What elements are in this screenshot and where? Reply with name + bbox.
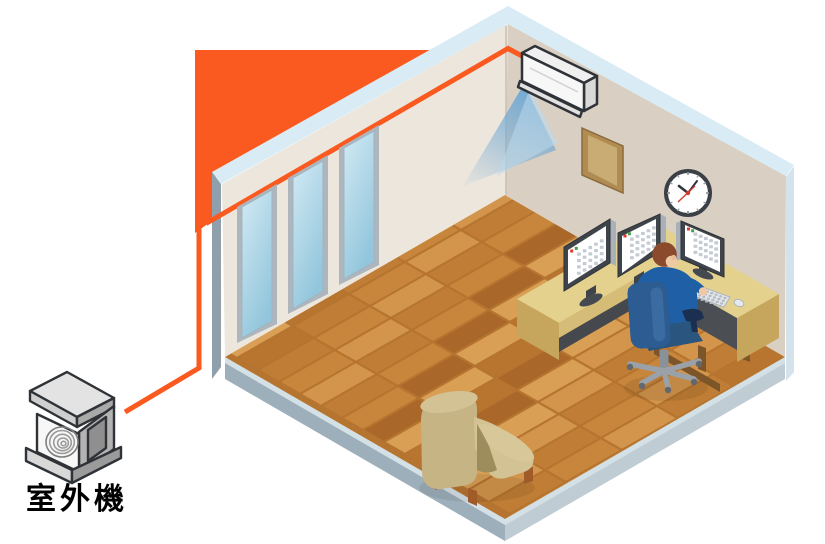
floor-plank	[638, 0, 711, 21]
floor-plank	[561, 0, 634, 41]
screen-grid-cell	[636, 247, 640, 250]
screen-red-dot	[570, 250, 573, 253]
floor-plank	[799, 199, 825, 241]
screen-grid-cell	[641, 232, 645, 235]
keyboard-key	[701, 299, 704, 301]
keyboard-key	[702, 296, 705, 298]
screen-grid-cell	[652, 239, 656, 242]
keyboard-key	[707, 298, 710, 300]
window-glass	[293, 161, 323, 309]
floor-plank	[813, 335, 825, 377]
screen-grid-cell	[588, 252, 592, 255]
screen-grid-cell	[714, 241, 718, 244]
chair-caster	[696, 361, 702, 367]
floor-plank	[708, 83, 781, 125]
person-ear	[671, 255, 676, 260]
screen-grid-cell	[636, 241, 640, 244]
screen-grid-cell	[577, 272, 581, 275]
screen-grid-cell	[699, 253, 703, 256]
screen-red-dot	[687, 228, 690, 231]
floor-plank	[92, 243, 165, 285]
floor-plank	[820, 19, 825, 61]
window-glass	[242, 190, 272, 338]
chair-caster	[665, 387, 671, 393]
person-hand	[699, 287, 707, 295]
screen-grid-cell	[583, 268, 587, 271]
screen-grid-cell	[714, 247, 718, 250]
screen-grid-cell	[709, 251, 713, 254]
wall-clock	[666, 171, 710, 215]
screen-grid-cell	[647, 248, 651, 251]
floor-plank	[498, 0, 571, 5]
keyboard-key	[720, 302, 723, 304]
ac-side	[584, 76, 597, 111]
floor-plank	[617, 0, 690, 9]
floor-plank	[666, 59, 739, 101]
floor-plank	[806, 267, 825, 309]
screen-grid-cell	[600, 239, 604, 242]
floor-plank	[624, 35, 697, 77]
outdoor-unit-label: 室外機	[26, 482, 128, 516]
floor-plank	[771, 119, 825, 161]
screen-grid-cell	[652, 226, 656, 229]
keyboard-key	[709, 295, 712, 297]
keyboard-key	[705, 300, 708, 302]
floor-plank	[813, 143, 825, 185]
screen-grid-cell	[704, 255, 708, 258]
left-wall-outer-edge	[212, 172, 221, 379]
floor-plank	[750, 107, 823, 149]
floor-plank	[71, 231, 144, 273]
floor-plank	[743, 39, 816, 81]
keyboard-key	[717, 298, 720, 300]
screen-grid-cell	[709, 257, 713, 260]
chair-caster	[627, 364, 633, 370]
window-2	[288, 155, 328, 314]
floor-plank	[722, 27, 795, 69]
screen-green-dot	[575, 247, 578, 250]
floor-plank	[778, 379, 825, 421]
floor-plank	[610, 475, 683, 517]
floor-plank	[799, 7, 825, 49]
floor-plank	[582, 11, 655, 53]
screen-grid-cell	[694, 239, 698, 242]
screen-grid-cell	[594, 255, 598, 258]
floor-plank	[722, 411, 795, 453]
floor-plank	[743, 423, 816, 465]
screen-grid-cell	[636, 235, 640, 238]
screen-grid-cell	[699, 241, 703, 244]
refrigerant-pipe-outdoor	[125, 224, 199, 412]
screen-grid-cell	[600, 259, 604, 262]
floor-plank	[687, 71, 760, 113]
screen-grid-cell	[630, 256, 634, 259]
screen-grid-cell	[577, 253, 581, 256]
floor-plank	[113, 255, 186, 297]
floor-plank	[792, 323, 825, 365]
screen-grid-cell	[714, 260, 718, 263]
screen-grid-cell	[699, 247, 703, 250]
screen-grid-cell	[600, 246, 604, 249]
window-1	[237, 184, 277, 343]
screen-grid-cell	[630, 238, 634, 241]
floor-plank	[50, 219, 123, 261]
chair-gas-lift	[660, 350, 669, 370]
screen-grid-cell	[647, 229, 651, 232]
screen-grid-cell	[647, 235, 651, 238]
floor-plank	[519, 0, 592, 17]
screen-grid-cell	[641, 244, 645, 247]
keyboard-key	[724, 297, 727, 299]
screen-grid-cell	[594, 262, 598, 265]
screen-grid-cell	[694, 245, 698, 248]
floor-plank	[799, 391, 825, 433]
floor-plank	[792, 131, 825, 173]
screen-grid-cell	[577, 259, 581, 262]
screen-grid-cell	[636, 253, 640, 256]
floor-plank	[736, 0, 809, 13]
floor-plank	[764, 51, 825, 93]
keyboard-key	[719, 295, 722, 297]
monitor-side	[610, 219, 616, 266]
floor-plank	[820, 211, 825, 253]
floor-plank	[715, 0, 788, 1]
screen-red-dot	[624, 235, 627, 238]
right-wall-outer-edge	[786, 166, 794, 381]
floor-plank	[631, 487, 704, 529]
screen-grid-cell	[647, 242, 651, 245]
screen-grid-cell	[704, 249, 708, 252]
screen-grid-cell	[652, 233, 656, 236]
screen-grid-cell	[714, 254, 718, 257]
keyboard-key	[718, 305, 721, 307]
floor-plank	[134, 267, 207, 309]
screen-grid-cell	[588, 265, 592, 268]
screen-grid-cell	[583, 262, 587, 265]
floor-plank	[687, 455, 760, 497]
floor-plank	[106, 187, 179, 229]
screen-grid-cell	[583, 256, 587, 259]
outdoor-unit-icon	[26, 372, 121, 483]
floor-plank	[806, 75, 825, 117]
keyboard-key	[714, 304, 717, 306]
screen-grid-cell	[630, 244, 634, 247]
screen-grid-cell	[699, 235, 703, 238]
screen-grid-cell	[709, 245, 713, 248]
screen-grid-cell	[594, 249, 598, 252]
floor-plank	[680, 3, 753, 45]
screen-grid-cell	[694, 233, 698, 236]
keyboard-key	[710, 302, 713, 304]
floor-plank	[540, 0, 613, 29]
screen-grid-cell	[704, 243, 708, 246]
chair-caster	[639, 383, 645, 389]
floor-plank	[666, 443, 739, 485]
keyboard-key	[715, 294, 718, 296]
floor-plank	[785, 63, 825, 105]
screen-grid-cell	[641, 238, 645, 241]
floor-plank	[575, 519, 648, 544]
keyboard-key	[710, 292, 713, 294]
floor-plank	[554, 507, 627, 544]
illustration-canvas: 室外機	[0, 0, 825, 544]
floor-plank	[659, 0, 732, 33]
screen-grid-cell	[594, 243, 598, 246]
screen-green-dot	[691, 229, 694, 232]
window-3	[339, 125, 379, 285]
screen-grid-cell	[641, 251, 645, 254]
screen-grid-cell	[709, 239, 713, 242]
window-glass	[344, 131, 374, 279]
floor-plank	[778, 0, 825, 37]
floor-plank	[701, 15, 774, 57]
screen-grid-cell	[577, 265, 581, 268]
floor-plank	[127, 199, 200, 241]
floor-plank	[729, 95, 802, 137]
keyboard-key	[722, 300, 725, 302]
screen-grid-cell	[588, 246, 592, 249]
chair-backrest	[627, 281, 672, 350]
screen-grid-cell	[704, 237, 708, 240]
screen-grid-cell	[630, 250, 634, 253]
screen-grid-cell	[588, 259, 592, 262]
chair-caster	[691, 379, 697, 385]
floor-plank	[603, 23, 676, 65]
screen-grid-cell	[583, 249, 587, 252]
keyboard-key	[711, 299, 714, 301]
keyboard-key	[716, 301, 719, 303]
screen-grid-cell	[694, 251, 698, 254]
keyboard-key	[713, 296, 716, 298]
screen-green-dot	[628, 232, 631, 235]
floor-plank	[645, 47, 718, 89]
floor-plank	[757, 0, 825, 25]
screen-grid-cell	[600, 252, 604, 255]
